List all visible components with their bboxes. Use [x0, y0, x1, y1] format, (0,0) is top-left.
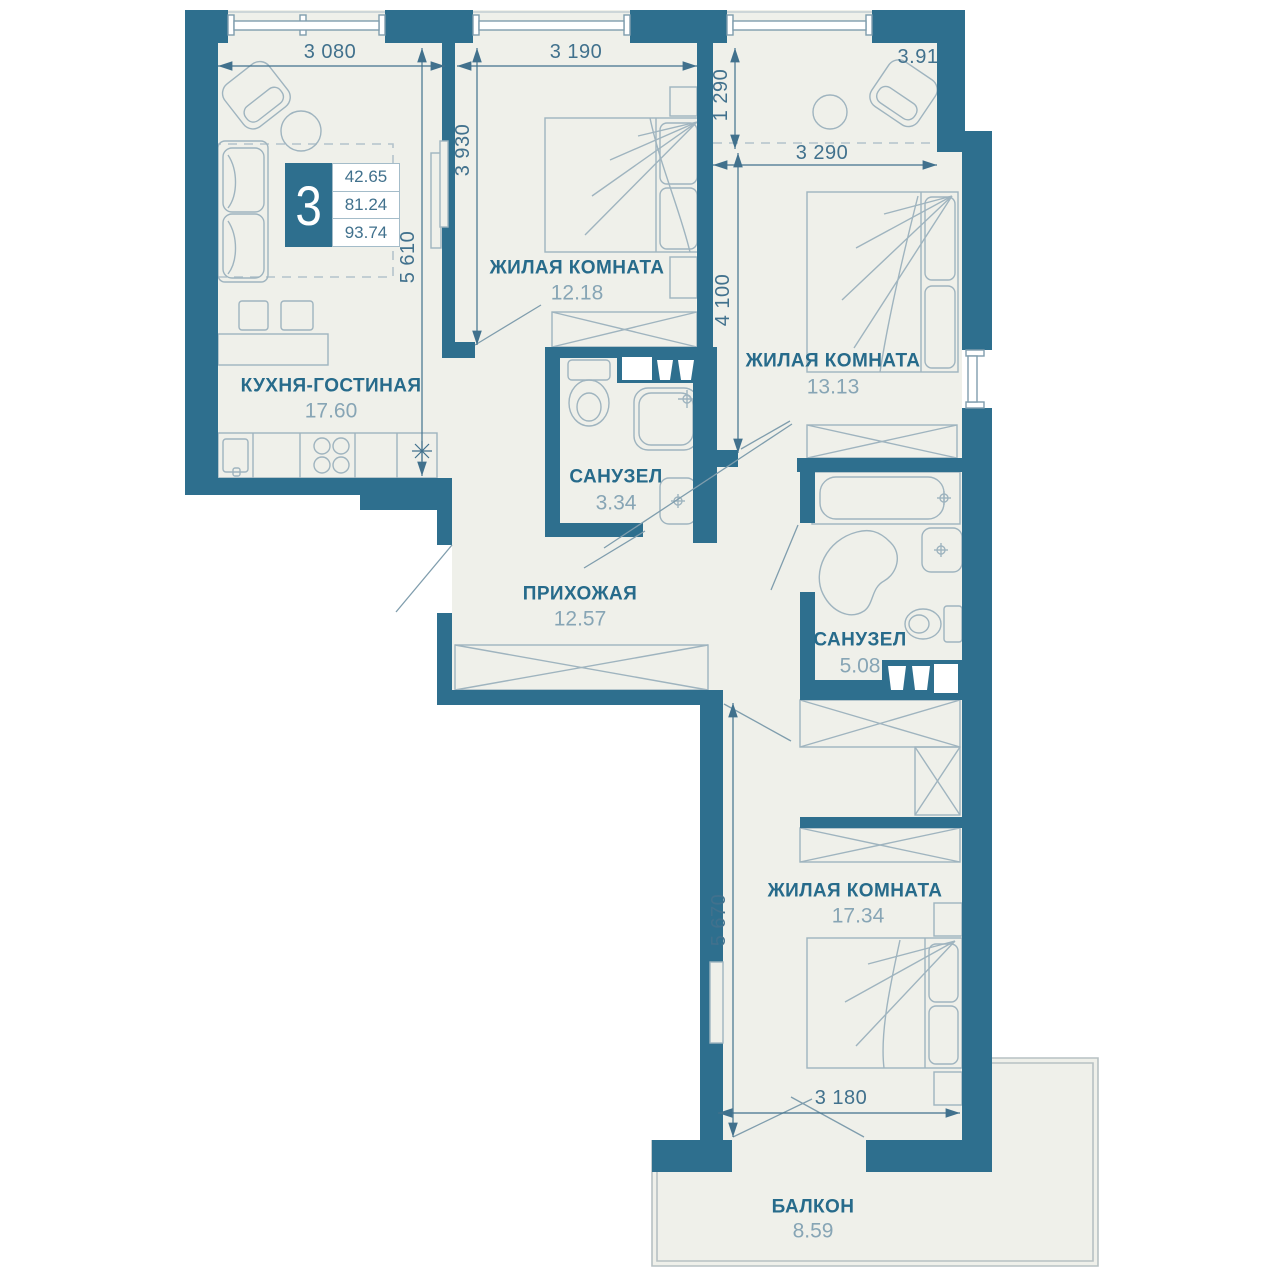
room-label-bathroom-large: САНУЗЕЛ	[813, 631, 906, 650]
room-area-bedroom-bottom: 17.34	[832, 906, 885, 927]
floor-plan-drawing	[0, 0, 1280, 1280]
room-area-bedroom-right: 13.13	[807, 377, 860, 398]
dim-bedroom-right-width: 3 290	[796, 143, 849, 163]
dim-bedroom-bottom-width: 3 180	[815, 1088, 868, 1108]
star-symbol	[412, 441, 432, 461]
dim-niche-height: 1 290	[711, 69, 731, 122]
dim-bedroom-top-width: 3 190	[550, 42, 603, 62]
window-right-wall	[962, 350, 992, 408]
unit-info-box: 3 42.65 81.24 93.74	[285, 163, 400, 247]
radiator-niche	[440, 141, 448, 227]
room-label-hallway: ПРИХОЖАЯ	[523, 585, 637, 604]
room-area-balcony: 8.59	[793, 1221, 834, 1242]
dim-bedroom-right-height: 4 100	[713, 274, 733, 327]
room-area-hallway: 12.57	[554, 609, 607, 630]
room-label-bathroom-small: САНУЗЕЛ	[569, 468, 662, 487]
room-area-bathroom-small: 3.34	[596, 493, 637, 514]
unit-area-living: 42.65	[333, 164, 399, 192]
unit-area-total: 93.74	[333, 219, 399, 246]
room-label-bedroom-bottom: ЖИЛАЯ КОМНАТА	[768, 882, 943, 901]
dim-bedroom-bottom-height: 5 670	[709, 894, 729, 947]
unit-rooms-count-badge: 3	[285, 163, 332, 247]
dim-kitchen-height: 5 610	[398, 231, 418, 284]
room-area-kitchen-living: 17.60	[305, 401, 358, 422]
unit-area-main: 81.24	[333, 192, 399, 220]
unit-area-table: 42.65 81.24 93.74	[332, 163, 400, 247]
room-area-bedroom-top: 12.18	[551, 283, 604, 304]
radiator-niche	[710, 962, 723, 1043]
room-label-bedroom-right: ЖИЛАЯ КОМНАТА	[746, 352, 921, 371]
dim-bedroom-top-height: 3 930	[453, 124, 473, 177]
dim-kitchen-width: 3 080	[304, 42, 357, 62]
zone-area-value: 3.91	[898, 47, 939, 67]
floor-plan: КУХНЯ-ГОСТИНАЯ 17.60 ЖИЛАЯ КОМНАТА 12.18…	[0, 0, 1280, 1280]
room-label-bedroom-top: ЖИЛАЯ КОМНАТА	[490, 259, 665, 278]
room-area-bathroom-large: 5.08	[840, 656, 881, 677]
entry-door-swing	[396, 545, 452, 612]
unit-rooms-count: 3	[295, 173, 321, 238]
room-label-kitchen-living: КУХНЯ-ГОСТИНАЯ	[241, 377, 422, 396]
room-label-balcony: БАЛКОН	[772, 1198, 855, 1217]
